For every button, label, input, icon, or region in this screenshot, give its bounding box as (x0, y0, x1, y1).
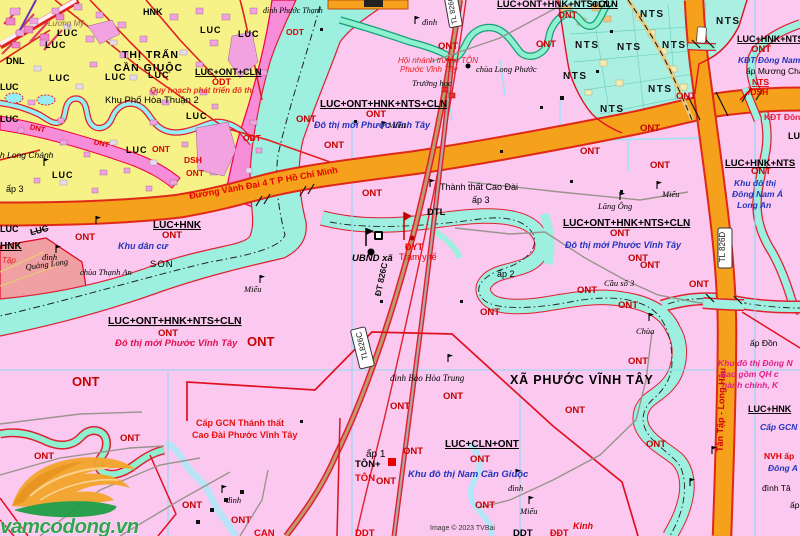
svg-text:ONT: ONT (72, 374, 100, 389)
svg-text:ONT: ONT (443, 391, 463, 402)
svg-text:Đông Nam Á: Đông Nam Á (732, 189, 783, 199)
svg-text:chùa Long Phước: chùa Long Phước (476, 64, 537, 74)
svg-text:Miếu: Miếu (243, 284, 261, 294)
svg-text:NTS: NTS (563, 71, 588, 82)
svg-text:THỊ TRẤN: THỊ TRẤN (122, 48, 179, 61)
svg-text:ấp 3: ấp 3 (472, 195, 490, 205)
svg-text:ONT: ONT (640, 123, 660, 134)
svg-text:ONT: ONT (650, 160, 670, 171)
svg-text:ONT: ONT (577, 285, 597, 296)
svg-text:đình Phước Thạnh: đình Phước Thạnh (263, 6, 323, 15)
svg-text:ONT: ONT (182, 500, 202, 511)
svg-text:ONT: ONT (646, 439, 666, 450)
svg-text:Image © 2023 TVBai: Image © 2023 TVBai (430, 524, 495, 532)
svg-text:Lương Mỹ: Lương Mỹ (48, 19, 85, 28)
svg-text:LUC: LUC (105, 72, 127, 82)
svg-text:SON: SON (150, 259, 174, 270)
svg-text:ONT: ONT (565, 405, 585, 416)
svg-text:CAN: CAN (254, 528, 275, 536)
svg-text:LUC+HNK: LUC+HNK (748, 404, 792, 414)
svg-text:Miếu: Miếu (387, 120, 405, 130)
svg-text:LUC+ONT+HNK+NTS+CLN: LUC+ONT+HNK+NTS+CLN (108, 315, 242, 327)
svg-text:ONT: ONT (689, 279, 709, 290)
svg-text:Khu đô thị Nam Cần Giuộc: Khu đô thị Nam Cần Giuộc (408, 469, 529, 480)
svg-text:NVH ấp: NVH ấp (764, 451, 794, 461)
svg-text:LUC: LUC (200, 25, 222, 35)
svg-text:KĐT Đông Nam Á: KĐT Đông Nam Á (738, 55, 800, 65)
svg-text:Phước Vĩnh Tây: Phước Vĩnh Tây (400, 65, 458, 74)
svg-text:LUC: LUC (52, 170, 74, 180)
svg-text:UBND xã: UBND xã (352, 253, 393, 264)
svg-text:ONT: ONT (536, 39, 556, 50)
svg-text:vamcodong.vn: vamcodong.vn (0, 515, 139, 536)
svg-text:LUC+ONT+HNK+NTS+CLN: LUC+ONT+HNK+NTS+CLN (563, 218, 690, 229)
svg-text:ONT: ONT (403, 446, 423, 457)
svg-text:LUC: LUC (0, 82, 19, 92)
svg-text:ONT: ONT (34, 451, 54, 462)
svg-text:ONT: ONT (470, 454, 490, 465)
svg-text:hành chính, K: hành chính, K (722, 380, 779, 390)
svg-text:NTS: NTS (752, 77, 769, 87)
svg-text:NTS: NTS (716, 16, 741, 27)
svg-text:Miếu: Miếu (519, 506, 537, 516)
svg-text:đình Tâ: đình Tâ (762, 483, 791, 493)
svg-text:Long An: Long An (737, 200, 771, 210)
svg-text:LUC: LUC (126, 145, 148, 155)
svg-text:ONT: ONT (162, 230, 182, 241)
svg-text:LUC: LUC (0, 114, 19, 124)
svg-text:NTS: NTS (640, 9, 665, 20)
svg-text:DSH: DSH (184, 155, 202, 165)
svg-text:ODT: ODT (286, 27, 305, 37)
svg-text:ONT: ONT (75, 232, 95, 243)
svg-text:đình: đình (226, 495, 241, 505)
svg-text:Đông A: Đông A (768, 463, 798, 473)
svg-text:Cao Đài Phước Vĩnh Tây: Cao Đài Phước Vĩnh Tây (192, 430, 297, 440)
svg-text:ONT: ONT (390, 401, 410, 412)
svg-text:ONT: ONT (152, 144, 171, 154)
svg-text:Chùa: Chùa (636, 326, 654, 336)
svg-text:ấp Đồn: ấp Đồn (750, 338, 778, 348)
svg-text:KĐT Đông: KĐT Đông (764, 112, 800, 122)
svg-text:LUC: LUC (186, 111, 208, 121)
svg-text:Đô thị mới Phước Vĩnh Tây: Đô thị mới Phước Vĩnh Tây (314, 120, 431, 130)
svg-text:LUC: LUC (49, 73, 71, 83)
svg-text:NTS: NTS (648, 84, 673, 95)
svg-text:Bao gồm QH c: Bao gồm QH c (720, 369, 779, 379)
svg-text:Thành thất Cao Đài: Thành thất Cao Đài (440, 182, 518, 192)
svg-text:ONT: ONT (186, 168, 205, 178)
svg-text:h Long Chánh: h Long Chánh (0, 150, 54, 160)
svg-text:HNK: HNK (0, 241, 22, 252)
svg-text:ONT: ONT (640, 260, 660, 271)
svg-text:ấp 2: ấp 2 (497, 269, 515, 279)
svg-text:Quy hoạch phát triển đô thị: Quy hoạch phát triển đô thị (150, 86, 255, 95)
svg-text:ONT: ONT (628, 356, 648, 367)
svg-text:Cấp GCN Thánh thất: Cấp GCN Thánh thất (196, 418, 284, 428)
svg-text:đình Bảo Hòa Trung: đình Bảo Hòa Trung (390, 373, 465, 383)
svg-text:TL 826D: TL 826D (718, 232, 727, 263)
svg-text:ONT: ONT (580, 146, 600, 157)
svg-text:HNK: HNK (143, 7, 163, 17)
svg-text:LUC: LUC (45, 40, 67, 50)
svg-text:đình: đình (422, 17, 437, 27)
svg-text:ONT: ONT (247, 334, 275, 349)
svg-text:Khu đô thị: Khu đô thị (734, 178, 777, 188)
svg-text:LUC: LUC (788, 131, 800, 141)
svg-text:Trường học: Trường học (412, 78, 452, 88)
svg-text:DTL: DTL (427, 207, 446, 218)
svg-text:ONT: ONT (610, 228, 630, 239)
svg-text:Cấp GCN: Cấp GCN (760, 422, 798, 432)
svg-text:NTS: NTS (600, 104, 625, 115)
svg-text:Miếu: Miếu (661, 189, 679, 199)
svg-text:ấp: ấp (790, 500, 800, 510)
svg-text:Khu đô thị Đông N: Khu đô thị Đông N (718, 358, 793, 368)
svg-text:Đô thị mới Phước Vĩnh Tây: Đô thị mới Phước Vĩnh Tây (115, 338, 238, 349)
svg-text:Cầu số 3: Cầu số 3 (604, 278, 634, 288)
svg-text:ONT: ONT (618, 300, 638, 311)
svg-text:LUC+HNK+NTS: LUC+HNK+NTS (725, 158, 795, 169)
svg-text:ONT: ONT (475, 500, 495, 511)
svg-text:ấp Mương Chài: ấp Mương Chài (746, 66, 800, 76)
svg-text:DNL: DNL (6, 56, 25, 66)
svg-text:ONT: ONT (676, 91, 696, 102)
svg-text:LUC: LUC (148, 70, 170, 80)
svg-text:LUC+HNK+NTS: LUC+HNK+NTS (737, 34, 800, 44)
svg-text:NTS: NTS (617, 42, 642, 53)
svg-text:ONT: ONT (438, 41, 458, 52)
svg-text:Trạm y tế: Trạm y tế (399, 252, 437, 262)
svg-text:Hội nhánh truyền TÔN: Hội nhánh truyền TÔN (398, 56, 478, 65)
svg-text:LUC: LUC (0, 224, 19, 234)
svg-text:ĐYT: ĐYT (405, 242, 424, 252)
svg-text:Kinh: Kinh (573, 521, 593, 531)
svg-text:Đô thị mới Phước Vĩnh Tây: Đô thị mới Phước Vĩnh Tây (565, 240, 682, 250)
svg-text:ODT: ODT (243, 133, 262, 143)
svg-text:LUC+CLN+ONT: LUC+CLN+ONT (445, 439, 519, 450)
svg-text:ấp 1: ấp 1 (366, 448, 386, 460)
svg-text:ONT: ONT (120, 433, 140, 444)
svg-text:NTS: NTS (662, 40, 687, 51)
svg-text:XÃ PHƯỚC VĨNH TÂY: XÃ PHƯỚC VĨNH TÂY (510, 372, 654, 387)
svg-text:ONT: ONT (366, 109, 386, 120)
svg-text:ONT: ONT (480, 307, 500, 318)
svg-text:Tập: Tập (2, 256, 16, 265)
svg-text:ĐĐT: ĐĐT (550, 528, 569, 536)
svg-text:ONT: ONT (362, 188, 382, 199)
svg-text:ấp 3: ấp 3 (6, 184, 24, 194)
svg-text:LUC+ONT+HNK+NTS+CLN: LUC+ONT+HNK+NTS+CLN (320, 99, 447, 110)
svg-text:LUC: LUC (57, 28, 79, 38)
svg-text:LUC+ONT+CLN: LUC+ONT+CLN (195, 67, 262, 77)
svg-text:ONT: ONT (376, 476, 396, 487)
svg-text:Khu dân cư: Khu dân cư (118, 241, 170, 251)
svg-text:DDT: DDT (513, 528, 533, 536)
svg-text:TÔN: TÔN (355, 472, 375, 484)
svg-text:ONT: ONT (324, 140, 344, 151)
svg-text:LUC: LUC (238, 29, 260, 39)
svg-text:DDT: DDT (355, 528, 375, 536)
svg-text:Khu Phố Hòa Thuận 2: Khu Phố Hòa Thuận 2 (105, 95, 199, 106)
svg-text:ONT: ONT (231, 515, 251, 526)
svg-text:đình: đình (508, 483, 523, 493)
svg-text:LUC+ONT+HNK+NTS+CLN: LUC+ONT+HNK+NTS+CLN (497, 0, 618, 10)
svg-text:chùa Thạnh An: chùa Thạnh An (80, 267, 132, 277)
svg-text:NTS: NTS (575, 40, 600, 51)
svg-text:ONT: ONT (751, 44, 771, 55)
svg-text:ONT: ONT (558, 10, 578, 20)
svg-text:Lăng Ông: Lăng Ông (597, 201, 632, 211)
